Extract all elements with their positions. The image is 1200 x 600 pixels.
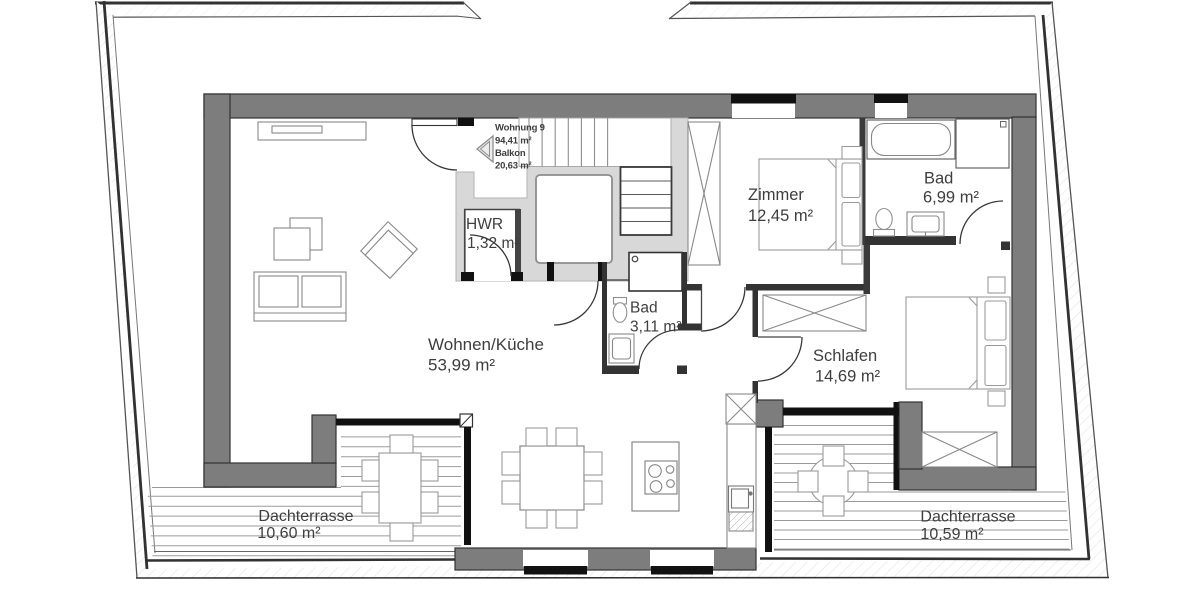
svg-text:14,69 m²: 14,69 m² (815, 368, 881, 386)
svg-text:3,11 m²: 3,11 m² (630, 319, 681, 336)
svg-text:Wohnung 9: Wohnung 9 (495, 123, 545, 134)
svg-text:Wohnen/Küche: Wohnen/Küche (428, 335, 544, 354)
svg-text:Dachterrasse: Dachterrasse (258, 508, 353, 525)
svg-text:6,99 m²: 6,99 m² (923, 189, 979, 207)
svg-text:12,45 m²: 12,45 m² (748, 207, 814, 225)
svg-text:10,59 m²: 10,59 m² (920, 526, 984, 543)
svg-text:94,41 m²: 94,41 m² (495, 136, 531, 147)
svg-text:Zimmer: Zimmer (748, 186, 804, 204)
svg-text:Balkon: Balkon (495, 148, 526, 159)
svg-text:10,60 m²: 10,60 m² (257, 525, 321, 542)
svg-text:Bad: Bad (924, 170, 953, 188)
svg-text:HWR: HWR (466, 216, 503, 233)
svg-text:20,63 m²: 20,63 m² (495, 161, 531, 172)
svg-text:Dachterrasse: Dachterrasse (920, 509, 1015, 526)
svg-text:Bad: Bad (630, 300, 658, 317)
svg-text:53,99 m²: 53,99 m² (428, 356, 495, 375)
svg-text:Schlafen: Schlafen (813, 347, 877, 365)
svg-text:1,32 m²: 1,32 m² (467, 235, 520, 252)
